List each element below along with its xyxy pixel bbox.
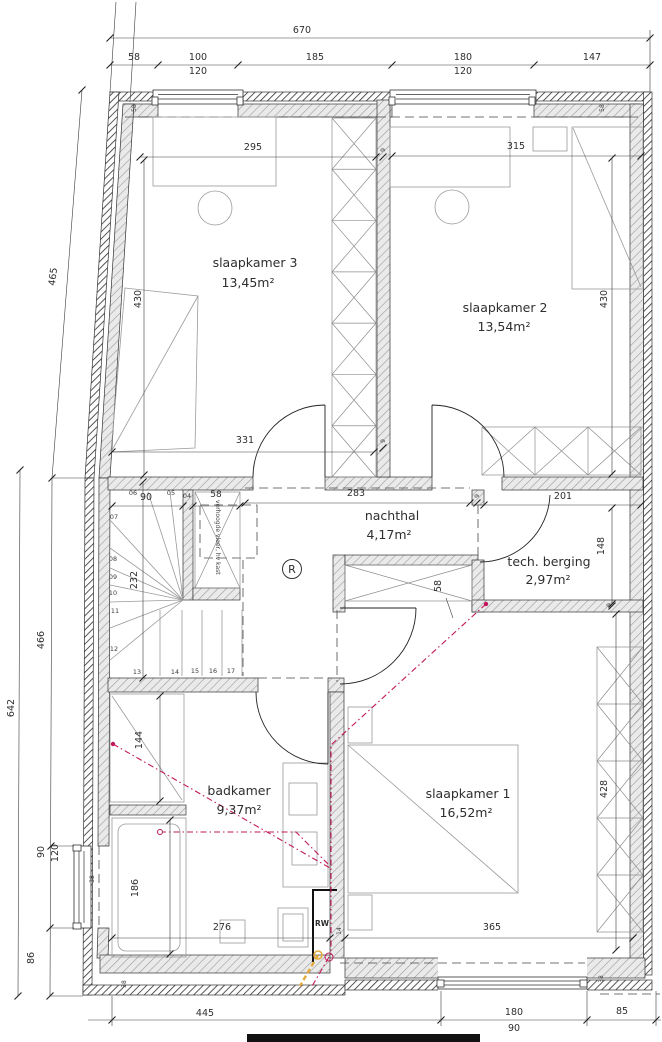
dim-bathtub: 186 [130, 879, 141, 897]
room-area-hall: 4,17m² [366, 527, 411, 542]
bathtub [112, 818, 186, 957]
window-bottom [437, 977, 587, 989]
wall-bath-door-stub [328, 678, 344, 692]
dim-left-120: 120 [50, 844, 61, 862]
floor-plan-drawing: 670 58 100 120 185 180 120 147 465 466 6… [0, 0, 662, 1042]
rainwater-label: RW [315, 919, 330, 928]
step-16: 16 [209, 667, 217, 675]
room-label-sk3: slaapkamer 3 [213, 255, 298, 270]
dim-wall-9b: 9 [380, 439, 387, 443]
dim-sk3-bottom: 331 [236, 435, 254, 446]
toilet-inner [283, 914, 303, 941]
dim-wall-58b: 58 [599, 104, 606, 112]
room-label-tech: tech. berging [507, 554, 590, 569]
wall-stair-closet-west [183, 490, 193, 600]
nightstand-sk1-b [348, 895, 372, 930]
step-07: 07 [110, 513, 118, 521]
dim-wall-58a: 58 [131, 104, 138, 112]
sink-2 [292, 832, 317, 865]
step-17: 17 [227, 667, 235, 675]
wall-left-inner-mid [98, 478, 110, 846]
dim-left-90: 90 [36, 846, 47, 858]
dim-wall-38c: 38 [598, 975, 605, 983]
wall-right-outer [644, 92, 653, 975]
room-area-sk3: 13,45m² [222, 275, 275, 290]
wall-right-inner [630, 104, 644, 975]
room-label-bath: badkamer [207, 783, 271, 798]
step-09: 09 [109, 573, 117, 581]
light-sk3 [198, 191, 232, 225]
wall-bath-fixture-stub [110, 805, 186, 815]
room-area-sk2: 13,54m² [478, 319, 531, 334]
room-label-hall: nachthal [365, 508, 419, 523]
dim-wall-9a: 9 [380, 148, 387, 152]
wall-top-inner-c [534, 104, 640, 117]
dim-sk3-depth: 430 [133, 290, 144, 308]
sanitary-line-3 [331, 604, 486, 955]
window-left [73, 845, 91, 929]
room-area-tech: 2,97m² [525, 572, 570, 587]
window-top-1 [152, 90, 243, 105]
bathtub-inner [118, 824, 180, 951]
wall-tech-south [472, 600, 643, 612]
dim-tech-width: 201 [554, 491, 572, 502]
dim-bottom-90: 90 [508, 1023, 520, 1034]
dim-stairs-width: 90 [140, 492, 152, 503]
doors [253, 405, 550, 764]
dim-left-642: 642 [6, 699, 17, 717]
floor-plan-page: 670 58 100 120 185 180 120 147 465 466 6… [0, 0, 662, 1042]
room-label-sk1: slaapkamer 1 [426, 786, 511, 801]
dim-wall-38a: 38 [89, 875, 96, 883]
dim-top-58: 58 [128, 52, 140, 63]
wall-bedrooms-south-c [502, 477, 643, 490]
dim-wall-9c: 9 [474, 494, 481, 498]
wall-stairs-south [108, 678, 258, 692]
walls [83, 92, 652, 995]
vanity [283, 763, 328, 887]
dim-sk1-width: 365 [483, 922, 501, 933]
dim-left-466: 466 [36, 631, 47, 649]
dim-top-180: 180 [454, 52, 472, 63]
desk-sk3 [111, 288, 198, 452]
step-04: 04 [183, 492, 191, 500]
room-area-bath: 9,37m² [216, 802, 261, 817]
sanitary-dot-2 [158, 830, 163, 835]
door-sk1 [340, 608, 416, 684]
step-10: 10 [109, 589, 117, 597]
dim-sk3-width: 295 [244, 142, 262, 153]
dim-hall-closet: 58 [433, 580, 444, 592]
window-top-2 [389, 90, 536, 105]
sink-1 [289, 783, 317, 815]
door-sk2 [432, 405, 504, 477]
sanitary-dot-1 [111, 742, 115, 746]
step-14: 14 [171, 668, 179, 676]
closet-note: verhoogde vloer, hv kast [214, 500, 221, 575]
scale-bar [247, 1034, 480, 1042]
wall-hall-closet-north [345, 555, 478, 565]
dim-left-465: 465 [47, 267, 60, 286]
dim-bath-width: 276 [213, 922, 231, 933]
step-05: 05 [167, 489, 175, 497]
wall-bottom-outer-right [585, 980, 652, 990]
step-13: 13 [133, 668, 141, 676]
dim-bottom-180: 180 [505, 1007, 523, 1018]
sanitary-dot-3 [484, 602, 488, 606]
dim-top-100: 100 [189, 52, 207, 63]
nightstand-sk2 [533, 127, 567, 151]
smoke-detector-letter: R [288, 563, 296, 576]
step-11: 11 [111, 607, 119, 615]
dim-top-120a: 120 [189, 66, 207, 77]
nightstand-sk1-a [348, 707, 372, 743]
step-15: 15 [191, 667, 199, 675]
dim-top-overall: 670 [293, 25, 311, 36]
dim-shower: 144 [134, 731, 145, 749]
dim-left-86: 86 [26, 952, 37, 964]
dim-stairs-depth: 232 [129, 571, 140, 589]
dim-top-185: 185 [306, 52, 324, 63]
wall-top-inner-b [238, 104, 392, 117]
dim-tech-depth: 148 [596, 537, 607, 555]
step-12: 12 [110, 645, 118, 653]
room-label-sk2: slaapkamer 2 [463, 300, 548, 315]
step-06: 06 [129, 489, 137, 497]
bed-sk2 [390, 127, 510, 187]
dim-sk1-closet: 428 [599, 780, 610, 798]
wardrobes-x-pattern [195, 118, 643, 932]
door-sk3 [253, 405, 325, 477]
step-08: 08 [109, 555, 117, 563]
sanitary-line-2 [160, 832, 330, 866]
wall-bath-bottom-inner [100, 955, 330, 973]
dim-wall-38b: 38 [121, 980, 128, 988]
dim-wall-14: 14 [336, 927, 343, 935]
wall-left-inner-low [97, 928, 109, 958]
light-sk2 [435, 190, 469, 224]
dim-sk2-depth: 430 [599, 290, 610, 308]
dim-hall-width: 283 [347, 488, 365, 499]
smoke-detector-icon: R [283, 560, 302, 579]
room-area-sk1: 16,52m² [440, 805, 493, 820]
dim-top-147: 147 [583, 52, 601, 63]
dim-top-120b: 120 [454, 66, 472, 77]
wall-stair-closet-south [193, 588, 240, 600]
wall-bath-sk1 [330, 692, 344, 958]
dim-bottom-85: 85 [616, 1006, 628, 1017]
door-badkamer [256, 692, 328, 764]
wall-bottom-outer-mid [345, 980, 440, 990]
dim-bottom-445: 445 [196, 1008, 214, 1019]
wall-hall-stub [333, 555, 345, 612]
dim-sk2-width: 315 [507, 141, 525, 152]
dim-stair-closet: 58 [210, 490, 222, 500]
dim-wall-9d: 9 [606, 603, 613, 607]
